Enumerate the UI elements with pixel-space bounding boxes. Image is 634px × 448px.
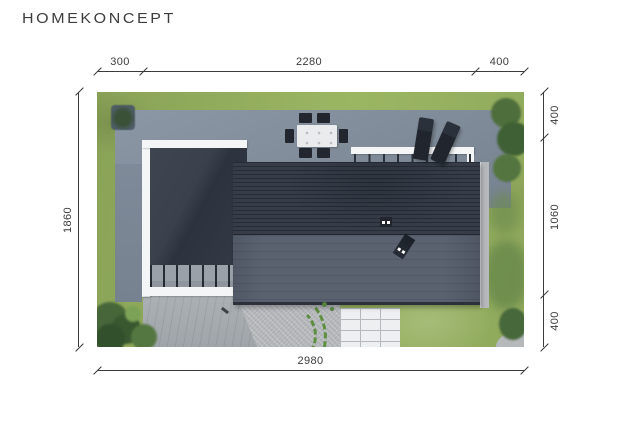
brand-logo: HOMEKONCEPT bbox=[22, 10, 176, 27]
chimney bbox=[380, 217, 392, 227]
dining-table bbox=[297, 125, 337, 147]
carport-trim bbox=[142, 140, 150, 297]
dining-chair bbox=[285, 129, 294, 143]
dim-label: 1060 bbox=[549, 203, 561, 229]
dimension-top: 300 2280 400 bbox=[97, 56, 524, 72]
roof-lower-slope bbox=[233, 235, 480, 305]
plant bbox=[322, 302, 327, 307]
dimension-segment: 400 bbox=[475, 56, 524, 72]
dimension-left: 1860 bbox=[78, 92, 79, 347]
dining-chair bbox=[299, 113, 312, 123]
garden-path bbox=[340, 308, 400, 347]
roof-upper-slope bbox=[233, 162, 480, 235]
tree bbox=[493, 154, 521, 182]
corner-shrub bbox=[111, 105, 135, 130]
dim-label: 2280 bbox=[296, 56, 322, 68]
dining-chair bbox=[299, 148, 312, 158]
dim-tick bbox=[540, 133, 548, 141]
dim-tick bbox=[520, 67, 528, 75]
tree-shadow bbox=[489, 192, 519, 234]
dimension-segment: 400 bbox=[543, 295, 544, 347]
dim-tick bbox=[540, 87, 548, 95]
dim-tick bbox=[93, 67, 101, 75]
aerial-render bbox=[97, 92, 524, 347]
plant bbox=[330, 307, 334, 311]
dimension-right: 400 1060 400 bbox=[543, 92, 544, 347]
dim-label: 1860 bbox=[62, 206, 74, 232]
gravel-strip bbox=[480, 162, 489, 308]
site-plan-page: HOMEKONCEPT 300 2280 400 1860 400 bbox=[0, 0, 634, 448]
dimension-segment: 1060 bbox=[543, 138, 544, 295]
carport-trim bbox=[142, 140, 247, 148]
dim-tick bbox=[520, 366, 528, 374]
dim-label: 300 bbox=[110, 56, 130, 68]
dimension-segment: 400 bbox=[543, 92, 544, 138]
chimney-vents bbox=[382, 221, 385, 224]
dim-tick bbox=[540, 290, 548, 298]
hedge bbox=[131, 324, 157, 347]
dim-label: 400 bbox=[549, 105, 561, 125]
dim-tick bbox=[93, 366, 101, 374]
dining-chair bbox=[339, 129, 348, 143]
dimension-bottom: 2980 bbox=[97, 357, 524, 371]
carport-trim bbox=[142, 287, 247, 296]
dimension-segment: 2280 bbox=[143, 56, 475, 72]
hedge bbox=[125, 306, 141, 322]
tree bbox=[499, 308, 524, 340]
dim-tick bbox=[75, 87, 83, 95]
tree bbox=[497, 122, 524, 156]
dining-chair bbox=[317, 113, 330, 123]
dim-label: 400 bbox=[490, 56, 510, 68]
dimension-segment: 2980 bbox=[97, 357, 524, 371]
dimension-segment: 1860 bbox=[78, 92, 79, 347]
dim-label: 2980 bbox=[297, 355, 323, 367]
tree-shadow bbox=[483, 240, 524, 310]
dim-label: 400 bbox=[549, 311, 561, 331]
dim-tick bbox=[540, 343, 548, 351]
chimney-vents bbox=[397, 247, 401, 251]
dim-tick bbox=[75, 343, 83, 351]
dimension-segment: 300 bbox=[97, 56, 143, 72]
main-house-roof bbox=[233, 162, 480, 305]
paved-side-strip bbox=[115, 164, 142, 302]
dining-chair bbox=[317, 148, 330, 158]
pergola-beam bbox=[351, 147, 474, 154]
